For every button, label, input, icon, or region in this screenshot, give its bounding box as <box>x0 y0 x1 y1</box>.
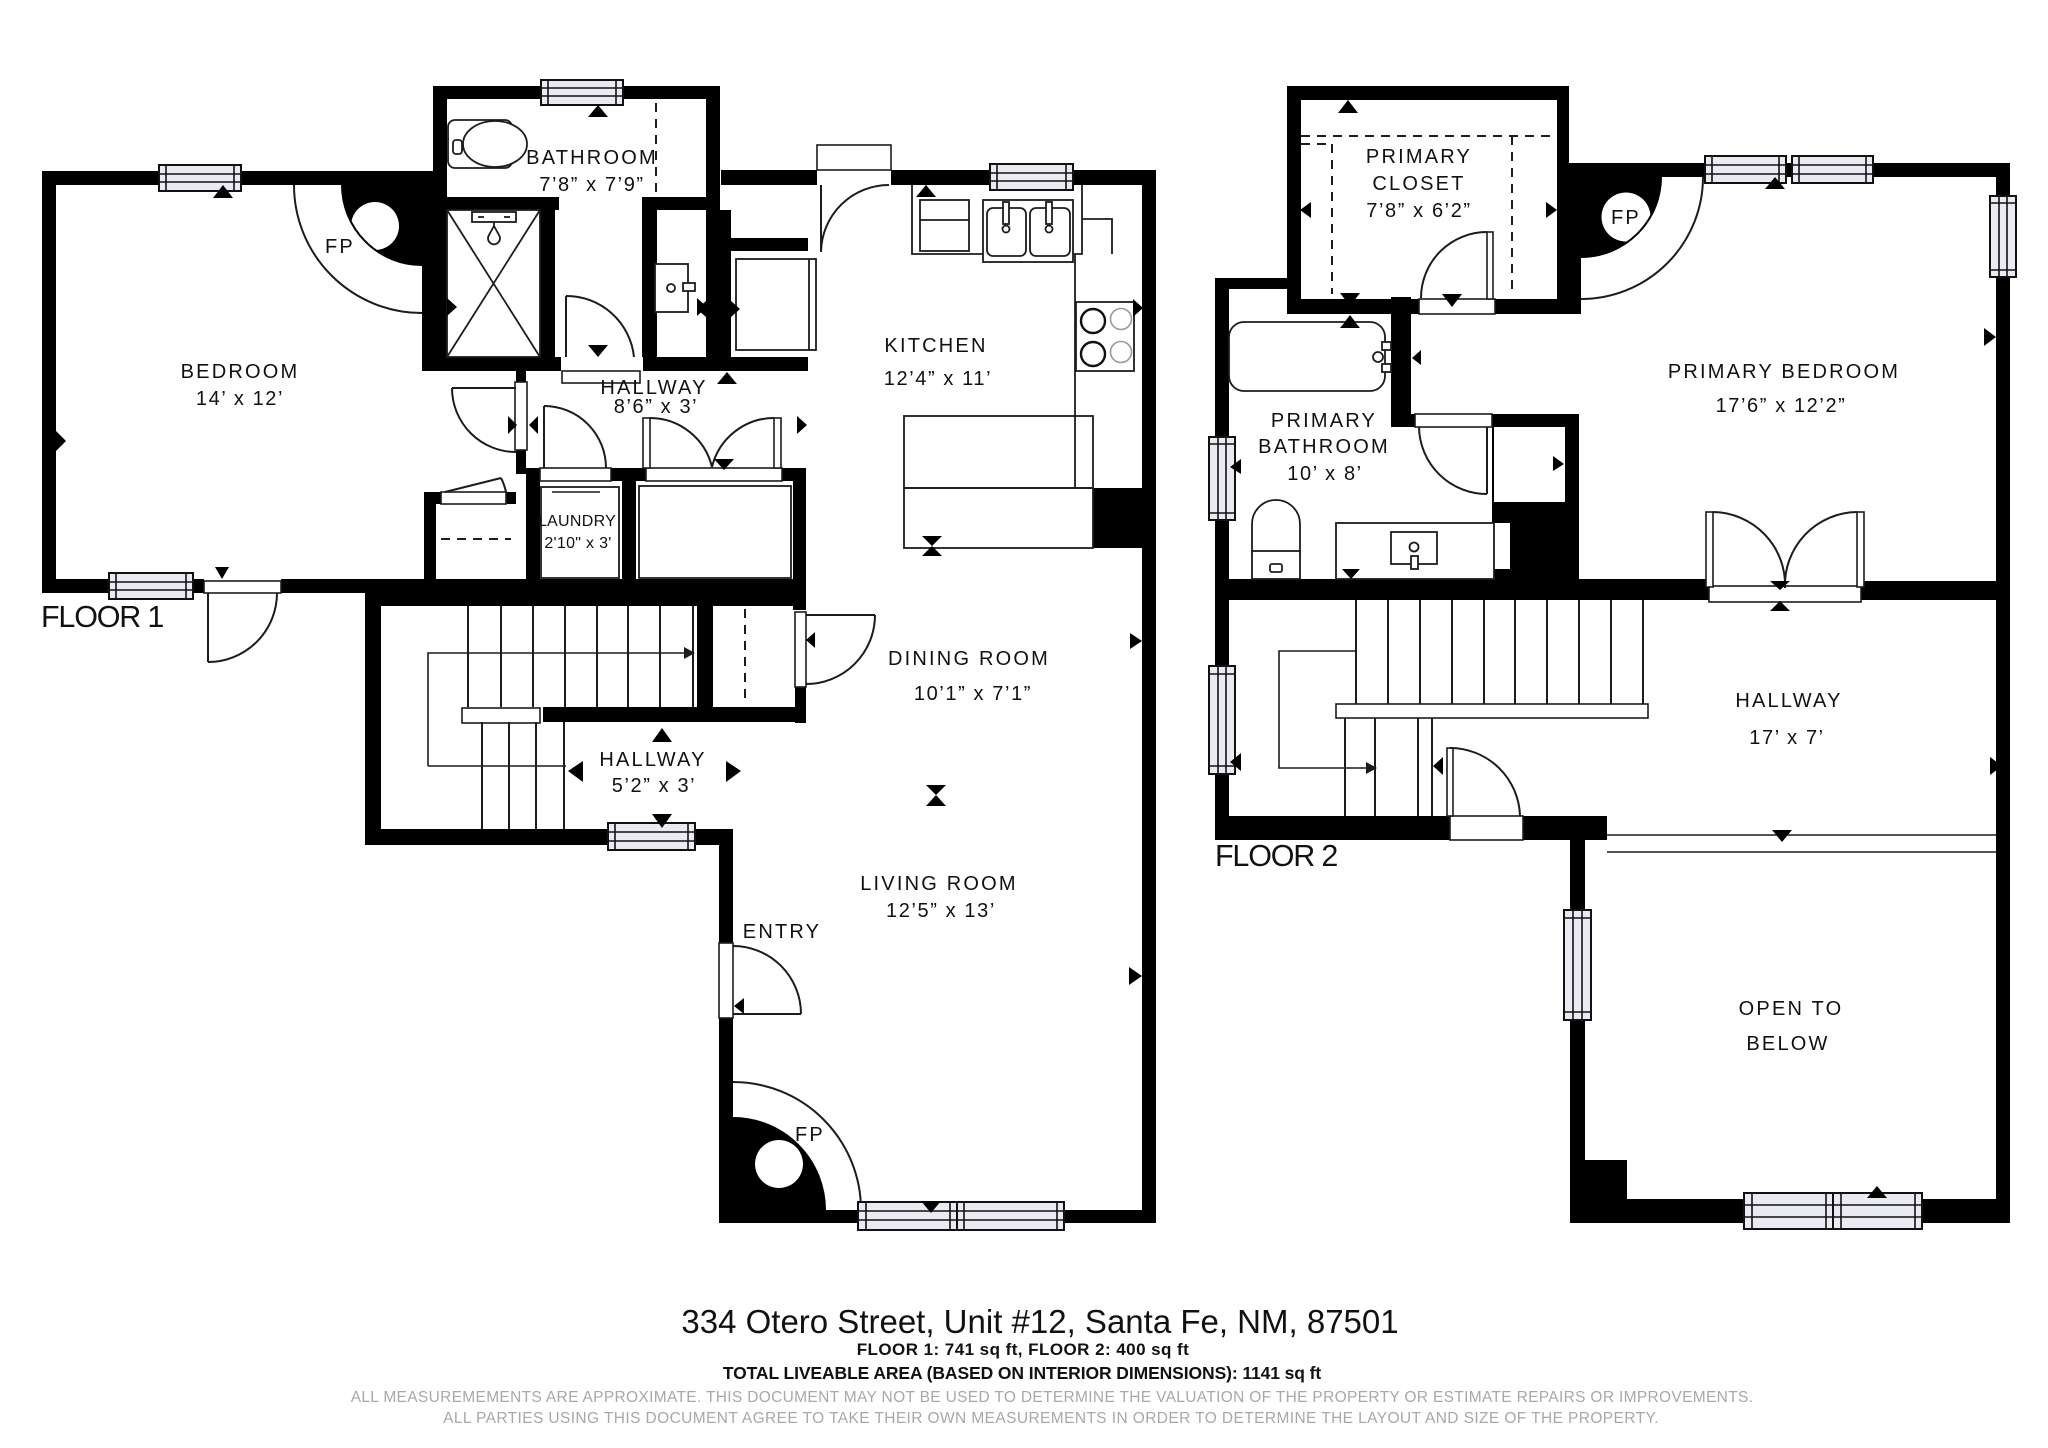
svg-text:ENTRY: ENTRY <box>743 921 821 943</box>
svg-text:ALL PARTIES USING THIS DOCUMEN: ALL PARTIES USING THIS DOCUMENT AGREE TO… <box>443 1410 1659 1427</box>
svg-text:5’2” x 3’: 5’2” x 3’ <box>612 775 696 797</box>
svg-text:14’ x 12’: 14’ x 12’ <box>196 388 284 410</box>
svg-text:PRIMARY: PRIMARY <box>1366 146 1472 168</box>
svg-text:FLOOR 1: FLOOR 1 <box>41 600 163 634</box>
svg-text:HALLWAY: HALLWAY <box>599 749 706 771</box>
svg-text:8’6” x 3’: 8’6” x 3’ <box>614 396 698 418</box>
svg-text:12’4” x 11’: 12’4” x 11’ <box>884 368 992 390</box>
svg-text:12’5” x 13’: 12’5” x 13’ <box>886 900 996 922</box>
svg-text:FP: FP <box>795 1124 825 1146</box>
svg-text:BATHROOM: BATHROOM <box>526 147 658 169</box>
svg-text:LAUNDRY: LAUNDRY <box>538 513 616 530</box>
svg-text:PRIMARY BEDROOM: PRIMARY BEDROOM <box>1668 361 1900 383</box>
svg-text:BATHROOM: BATHROOM <box>1258 436 1390 458</box>
svg-text:CLOSET: CLOSET <box>1372 173 1465 195</box>
svg-text:HALLWAY: HALLWAY <box>1735 690 1842 712</box>
svg-text:334 Otero Street, Unit #12, Sa: 334 Otero Street, Unit #12, Santa Fe, NM… <box>681 1303 1398 1340</box>
svg-text:PRIMARY: PRIMARY <box>1271 410 1377 432</box>
svg-text:2'10" x 3': 2'10" x 3' <box>544 535 611 552</box>
svg-text:TOTAL LIVEABLE AREA (BASED ON: TOTAL LIVEABLE AREA (BASED ON INTERIOR D… <box>723 1363 1322 1383</box>
svg-text:FP: FP <box>325 236 355 258</box>
svg-text:7’8” x 7’9”: 7’8” x 7’9” <box>539 174 644 196</box>
svg-text:FLOOR 1: 741 sq ft, FLOOR 2: 4: FLOOR 1: 741 sq ft, FLOOR 2: 400 sq ft <box>857 1340 1190 1359</box>
svg-text:OPEN TO: OPEN TO <box>1739 998 1844 1020</box>
svg-text:FP: FP <box>1611 207 1641 229</box>
svg-text:KITCHEN: KITCHEN <box>884 335 987 357</box>
svg-text:BEDROOM: BEDROOM <box>181 361 300 383</box>
svg-text:17’ x 7’: 17’ x 7’ <box>1749 727 1824 749</box>
svg-text:LIVING ROOM: LIVING ROOM <box>860 873 1018 895</box>
svg-text:FLOOR 2: FLOOR 2 <box>1215 839 1337 873</box>
svg-text:10’1” x 7’1”: 10’1” x 7’1” <box>914 683 1032 705</box>
svg-text:7’8” x 6’2”: 7’8” x 6’2” <box>1366 200 1471 222</box>
svg-text:17’6” x 12’2”: 17’6” x 12’2” <box>1716 395 1847 417</box>
svg-text:DINING ROOM: DINING ROOM <box>888 648 1050 670</box>
svg-text:ALL MEASUREMEMENTS ARE APPROXI: ALL MEASUREMEMENTS ARE APPROXIMATE. THIS… <box>351 1389 1754 1406</box>
svg-text:BELOW: BELOW <box>1746 1033 1829 1055</box>
svg-text:10’ x 8’: 10’ x 8’ <box>1287 463 1362 485</box>
